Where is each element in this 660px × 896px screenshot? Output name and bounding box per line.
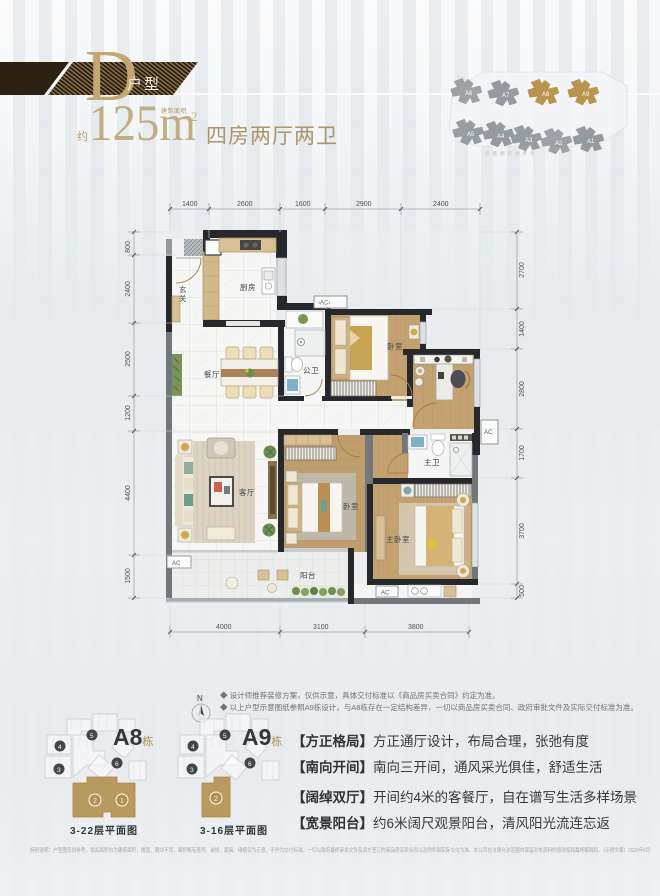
svg-text:主卧室: 主卧室: [386, 534, 410, 544]
svg-text:800: 800: [125, 241, 132, 253]
svg-text:500: 500: [519, 585, 526, 597]
svg-text:2500: 2500: [125, 351, 132, 367]
svg-text:客厅: 客厅: [239, 487, 255, 497]
svg-text:A3: A3: [525, 138, 533, 144]
svg-text:A6: A6: [465, 91, 473, 97]
svg-text:2600: 2600: [237, 201, 253, 208]
svg-text:关: 关: [179, 293, 187, 303]
svg-text:2400: 2400: [433, 201, 449, 208]
svg-text:N: N: [197, 694, 203, 703]
svg-text:主卫: 主卫: [424, 457, 440, 467]
svg-text:餐厅: 餐厅: [204, 370, 220, 379]
svg-text:A9: A9: [582, 92, 590, 98]
svg-text:3: 3: [57, 767, 61, 774]
svg-text:3100: 3100: [313, 624, 329, 631]
svg-text:阳台: 阳台: [300, 570, 316, 580]
svg-text:1200: 1200: [125, 405, 132, 421]
svg-text:2800: 2800: [519, 381, 526, 397]
svg-text:‹AC›: ‹AC›: [318, 301, 330, 307]
svg-text:卧室: 卧室: [387, 341, 403, 351]
svg-text:4: 4: [58, 744, 62, 751]
svg-text:6: 6: [115, 761, 119, 768]
svg-text:3700: 3700: [519, 523, 526, 539]
svg-text:玄: 玄: [179, 284, 187, 294]
svg-text:户型: 户型: [127, 76, 161, 93]
svg-text:5: 5: [90, 733, 94, 740]
svg-text:A8: A8: [542, 92, 550, 98]
svg-text:A1: A1: [587, 139, 595, 145]
svg-text:3: 3: [190, 767, 194, 774]
svg-text:1700: 1700: [519, 445, 526, 461]
svg-text:1400: 1400: [519, 321, 526, 337]
svg-text:A7: A7: [502, 93, 510, 99]
svg-text:AC: AC: [172, 561, 181, 567]
svg-text:示意图仅供参考: 示意图仅供参考: [485, 150, 538, 157]
svg-text:5: 5: [223, 733, 227, 740]
svg-text:厨房: 厨房: [240, 282, 256, 292]
svg-text:A4: A4: [497, 134, 505, 140]
svg-text:4: 4: [191, 744, 195, 751]
svg-text:2: 2: [93, 798, 97, 805]
svg-text:6: 6: [248, 761, 252, 768]
svg-text:AC: AC: [381, 591, 390, 597]
svg-text:1600: 1600: [295, 201, 311, 208]
svg-text:3800: 3800: [408, 624, 424, 631]
svg-text:4400: 4400: [125, 485, 132, 501]
svg-text:2: 2: [214, 796, 218, 803]
svg-text:1500: 1500: [125, 568, 132, 584]
svg-text:卧室: 卧室: [343, 501, 359, 511]
svg-text:2400: 2400: [125, 281, 132, 297]
svg-text:公卫: 公卫: [303, 366, 319, 375]
svg-text:A5: A5: [467, 132, 475, 138]
svg-text:AC: AC: [484, 430, 493, 436]
svg-text:4000: 4000: [216, 624, 232, 631]
svg-text:1: 1: [120, 798, 124, 805]
svg-text:2900: 2900: [356, 201, 372, 208]
svg-text:A2: A2: [555, 141, 563, 147]
svg-text:2700: 2700: [519, 262, 526, 278]
svg-text:1400: 1400: [182, 201, 198, 208]
